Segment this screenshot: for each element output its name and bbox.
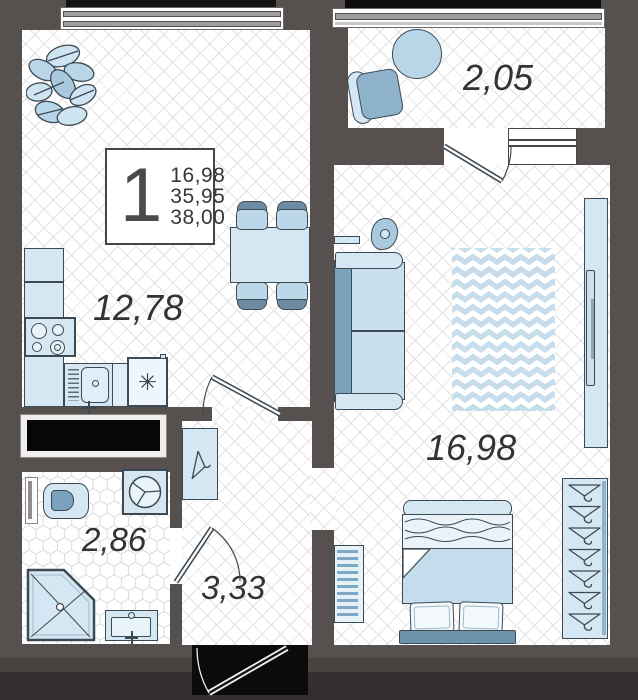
- vent-shaft: [27, 420, 160, 451]
- balcony-sill-window: [508, 128, 577, 165]
- kitchen-door-threshold: [212, 407, 278, 423]
- bathroom-door-threshold: [170, 528, 182, 584]
- dining-table: [230, 227, 310, 283]
- stove-burner: [31, 323, 47, 339]
- room-label-balcony: 2,05: [463, 60, 533, 96]
- dining-chair: [274, 281, 310, 311]
- sofa: [334, 252, 408, 410]
- corner-shower: [26, 568, 96, 642]
- toilet-bowl: [51, 490, 74, 511]
- room-label-bedroom: 16,98: [426, 430, 516, 466]
- lamp-bulb: [380, 229, 390, 239]
- bed: [399, 498, 516, 645]
- stove: [24, 317, 76, 357]
- blanket-corner: [403, 549, 433, 579]
- bed-headboard: [399, 630, 516, 644]
- window-bar: [335, 13, 602, 20]
- kitchen-sink-unit: [64, 363, 113, 407]
- exterior-band: [0, 658, 638, 672]
- bed-pillow: [458, 601, 503, 634]
- radiator-bar: [28, 481, 32, 519]
- exterior-band-dark: [0, 672, 638, 700]
- hanger-icon: [188, 451, 214, 481]
- chair-back: [237, 299, 267, 310]
- sink-drainboard: [68, 369, 79, 401]
- sofa-cushion: [351, 331, 405, 400]
- snowflake-icon: ✳: [138, 369, 157, 396]
- window-bar: [335, 22, 602, 25]
- tv-mount: [591, 299, 594, 359]
- stove-burner: [32, 342, 42, 352]
- kitchen-window-rail: [66, 0, 276, 7]
- chair-seat: [276, 209, 308, 230]
- chair-seat: [236, 209, 268, 230]
- balcony-chair: [345, 62, 411, 131]
- sofa-armrest: [335, 393, 403, 410]
- sofa-armrest: [335, 252, 403, 269]
- blanket-fold: [402, 514, 513, 549]
- balcony-rail: [345, 0, 601, 8]
- counter-seam: [25, 281, 63, 283]
- room-label-bathroom: 2,86: [82, 523, 146, 556]
- balcony-window: [332, 8, 605, 28]
- room-label-kitchen: 12,78: [93, 290, 183, 326]
- rug: [452, 248, 555, 411]
- sink-faucet: [82, 407, 96, 409]
- books: [337, 550, 358, 618]
- tv: [586, 270, 595, 386]
- sink-drain: [128, 612, 135, 619]
- bed-blanket: [402, 548, 513, 604]
- bathroom-sink: [105, 610, 158, 641]
- bed-pillow: [409, 601, 454, 634]
- dining-chair: [234, 281, 270, 311]
- fridge: ✳: [127, 357, 168, 407]
- counter-strip: [112, 363, 128, 407]
- sink-drain: [92, 380, 99, 387]
- bookshelf: [334, 545, 364, 623]
- rooms-count: 1: [120, 164, 162, 229]
- hangers: [565, 482, 604, 635]
- area-value-2: 35,95: [170, 186, 225, 207]
- sofa-cushion: [351, 262, 405, 331]
- stove-burner: [50, 340, 65, 355]
- dining-chair: [274, 201, 310, 231]
- entrance-vestibule: [192, 645, 308, 695]
- wardrobe: [562, 478, 608, 639]
- chair-back: [277, 299, 307, 310]
- plant: [26, 40, 100, 136]
- stove-burner-ring: [54, 344, 61, 351]
- room-label-hallway: 3,33: [201, 571, 265, 604]
- fridge-handle: [160, 354, 166, 359]
- coat-rack: [182, 428, 218, 500]
- balcony-door-threshold: [444, 128, 508, 165]
- chair-seat: [355, 67, 405, 121]
- area-value-1: 16,98: [170, 165, 225, 186]
- sill-line: [509, 139, 576, 141]
- stove-burner: [52, 324, 64, 336]
- window-bar: [63, 21, 281, 27]
- pillow-seam: [463, 605, 500, 629]
- living-passage-threshold: [310, 468, 336, 530]
- lamp-shelf: [334, 236, 360, 244]
- washing-machine: [122, 469, 168, 515]
- window-bar: [63, 11, 281, 17]
- sink-faucet: [125, 637, 138, 639]
- sill-line: [509, 145, 576, 147]
- pillow-seam: [414, 605, 451, 629]
- sink-basin: [81, 367, 109, 403]
- area-value-3: 38,00: [170, 207, 225, 228]
- towel-radiator: [25, 477, 38, 524]
- unit-info-card: 1 16,98 35,95 38,00: [105, 148, 215, 245]
- toilet: [43, 483, 89, 519]
- floor-plan: ✳ 1 16,98: [0, 0, 638, 700]
- kitchen-window: [60, 7, 284, 30]
- dining-chair: [234, 201, 270, 231]
